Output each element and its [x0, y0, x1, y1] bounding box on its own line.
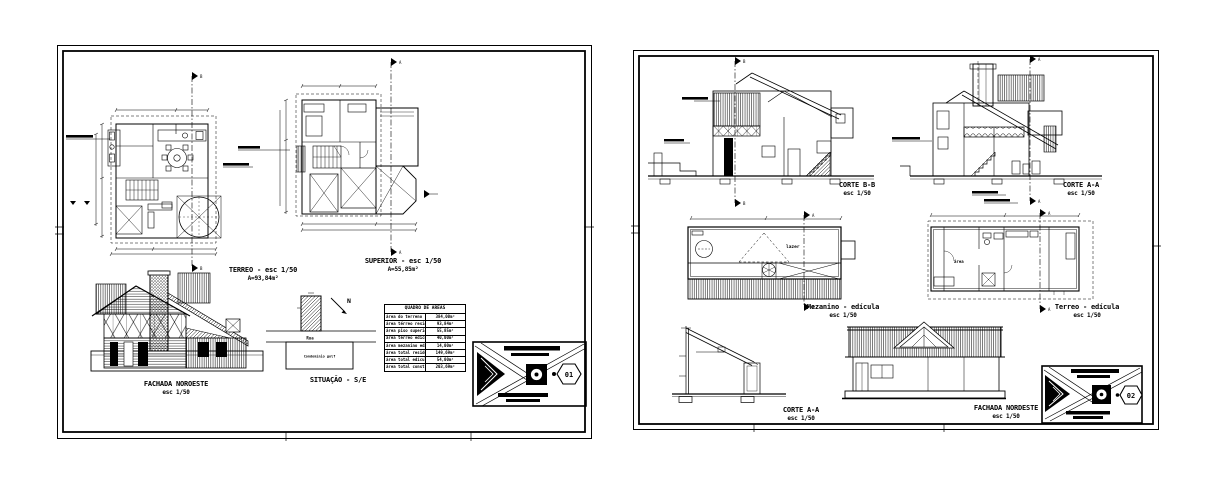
sheet-01: B B	[57, 45, 592, 439]
north-label: N	[347, 297, 351, 305]
table-row: área total construída203,69m²	[385, 364, 466, 371]
corte-aa-edicula-scale: esc 1/50	[753, 415, 849, 423]
corte-aa-scale: esc 1/50	[1033, 190, 1129, 198]
mezanino-label: Mezanino - edícula esc 1/50	[793, 303, 893, 320]
cad-drawing-canvas: B B	[0, 0, 1215, 484]
plan-terreo	[108, 116, 221, 243]
section-letter: A	[1048, 211, 1051, 216]
terreo-title: TERREO - esc 1/50	[208, 266, 318, 275]
section-letter: A	[399, 250, 402, 255]
sheet-number: 01	[565, 371, 573, 379]
terreo-leader-annotations	[66, 135, 253, 205]
table-row: área total residência149,69m²	[385, 349, 466, 356]
section-line-a-superior: A A	[391, 58, 402, 256]
terreo-area: A=93,84m²	[208, 275, 318, 283]
fachada-noroeste-title: FACHADA NOROESTE	[126, 380, 226, 389]
corte-aa-title: CORTE A-A	[1033, 181, 1129, 190]
area-label-cell: área mezanino edícula	[385, 342, 426, 349]
mezanino-scale: esc 1/50	[793, 312, 893, 320]
situacao-label: SITUAÇÃO - S/E	[288, 376, 388, 385]
sheet-02-art: B B	[634, 51, 1158, 429]
area-value-cell: 40,00m²	[425, 335, 466, 342]
terreo-edicula-label: Terreo - edícula esc 1/50	[1037, 303, 1137, 320]
elevation-fachada-nordeste	[842, 322, 1006, 399]
fachada-noroeste-scale: esc 1/50	[126, 389, 226, 397]
area-label-cell: área térreo edícula	[385, 335, 426, 342]
area-value-cell: 55,85m²	[425, 328, 466, 335]
elevation-fachada-noroeste	[91, 271, 263, 371]
section-letter: B	[200, 74, 203, 79]
fachada-noroeste-label: FACHADA NOROESTE esc 1/50	[126, 380, 226, 397]
area-value-cell: 14,00m²	[425, 342, 466, 349]
table-row: área do terreno384,00m²	[385, 314, 466, 321]
superior-title: SUPERIOR - esc 1/50	[348, 257, 458, 266]
corte-aa-label: CORTE A-A esc 1/50	[1033, 181, 1129, 198]
terreo-edicula-room-label: área	[954, 259, 964, 264]
area-value-cell: 203,69m²	[425, 364, 466, 371]
plan-mezanino	[688, 216, 855, 299]
table-row: área térreo edícula40,00m²	[385, 335, 466, 342]
area-value-cell: 93,84m²	[425, 321, 466, 328]
section-letter: A	[399, 60, 402, 65]
area-label-cell: área total residência	[385, 349, 426, 356]
corte-aa-edicula-label: CORTE A-A esc 1/50	[753, 406, 849, 423]
superior-label: SUPERIOR - esc 1/50 A=55,85m²	[348, 257, 458, 274]
corte-aa-edicula	[672, 326, 786, 403]
area-value-cell: 149,69m²	[425, 349, 466, 356]
area-table-title: QUADRO DE AREAS	[385, 305, 466, 314]
mezanino-title: Mezanino - edícula	[793, 303, 893, 312]
terreo-edicula-scale: esc 1/50	[1037, 312, 1137, 320]
title-block: 02	[1042, 366, 1142, 423]
corte-bb-scale: esc 1/50	[809, 190, 905, 198]
fachada-nordeste-title: FACHADA NORDESTE	[956, 404, 1056, 413]
mezanino-room-label: lazer	[786, 244, 800, 250]
title-block: 01	[473, 342, 586, 406]
sheet-02: B B	[633, 50, 1159, 430]
terreo-edicula-title: Terreo - edícula	[1037, 303, 1137, 312]
plan-terreo-edicula	[928, 213, 1093, 299]
section-line-b-terreo: B B	[192, 72, 203, 272]
section-letter: A	[812, 213, 815, 218]
area-label-cell: área do terreno	[385, 314, 426, 321]
condo-label: Condomínio golf	[304, 355, 336, 359]
north-arrow: N	[331, 297, 351, 314]
area-table: QUADRO DE AREAS área do terreno384,00m² …	[384, 304, 466, 372]
street-label: Rua	[306, 336, 314, 341]
fachada-nordeste-label: FACHADA NORDESTE esc 1/50	[956, 404, 1056, 421]
table-row: área piso superior55,85m²	[385, 328, 466, 335]
section-letter: A	[1038, 199, 1041, 204]
corte-bb	[648, 73, 874, 184]
table-row: área térreo residência93,84m²	[385, 321, 466, 328]
corte-aa-edicula-title: CORTE A-A	[753, 406, 849, 415]
sheet-number: 02	[1127, 392, 1135, 400]
plan-superior	[296, 94, 418, 216]
area-value-cell: 54,00m²	[425, 357, 466, 364]
section-letter: B	[743, 201, 746, 206]
table-row: área total edícula54,00m²	[385, 357, 466, 364]
area-label-cell: área térreo residência	[385, 321, 426, 328]
section-letter: B	[200, 266, 203, 271]
table-row: área mezanino edícula14,00m²	[385, 342, 466, 349]
area-label-cell: área total edícula	[385, 357, 426, 364]
superior-area: A=55,85m²	[348, 266, 458, 274]
corte-bb-label: CORTE B-B esc 1/50	[809, 181, 905, 198]
area-value-cell: 384,00m²	[425, 314, 466, 321]
terreo-label: TERREO - esc 1/50 A=93,84m²	[208, 266, 318, 283]
corte-bb-title: CORTE B-B	[809, 181, 905, 190]
area-label-cell: área piso superior	[385, 328, 426, 335]
section-letter: A	[1038, 57, 1041, 62]
area-label-cell: área total construída	[385, 364, 426, 371]
section-line-terreo-edicula: A A	[1040, 209, 1051, 313]
situacao-title: SITUAÇÃO - S/E	[288, 376, 388, 385]
section-letter: B	[743, 59, 746, 64]
fachada-nordeste-scale: esc 1/50	[956, 413, 1056, 421]
